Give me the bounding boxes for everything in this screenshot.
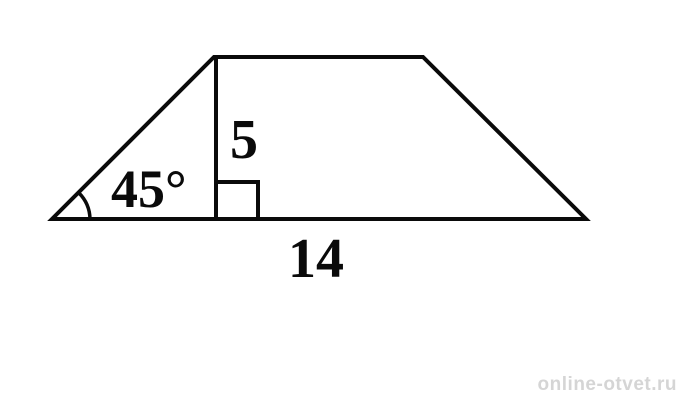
- geometry-diagram-canvas: 45° 5 14 online-otvet.ru: [0, 0, 682, 400]
- trapezoid-diagram: 45° 5 14: [0, 0, 682, 400]
- right-angle-marker: [216, 182, 258, 219]
- angle-label: 45°: [111, 159, 187, 219]
- base-label: 14: [288, 228, 344, 290]
- angle-arc: [79, 193, 90, 219]
- watermark: online-otvet.ru: [538, 374, 677, 396]
- height-label: 5: [230, 109, 258, 171]
